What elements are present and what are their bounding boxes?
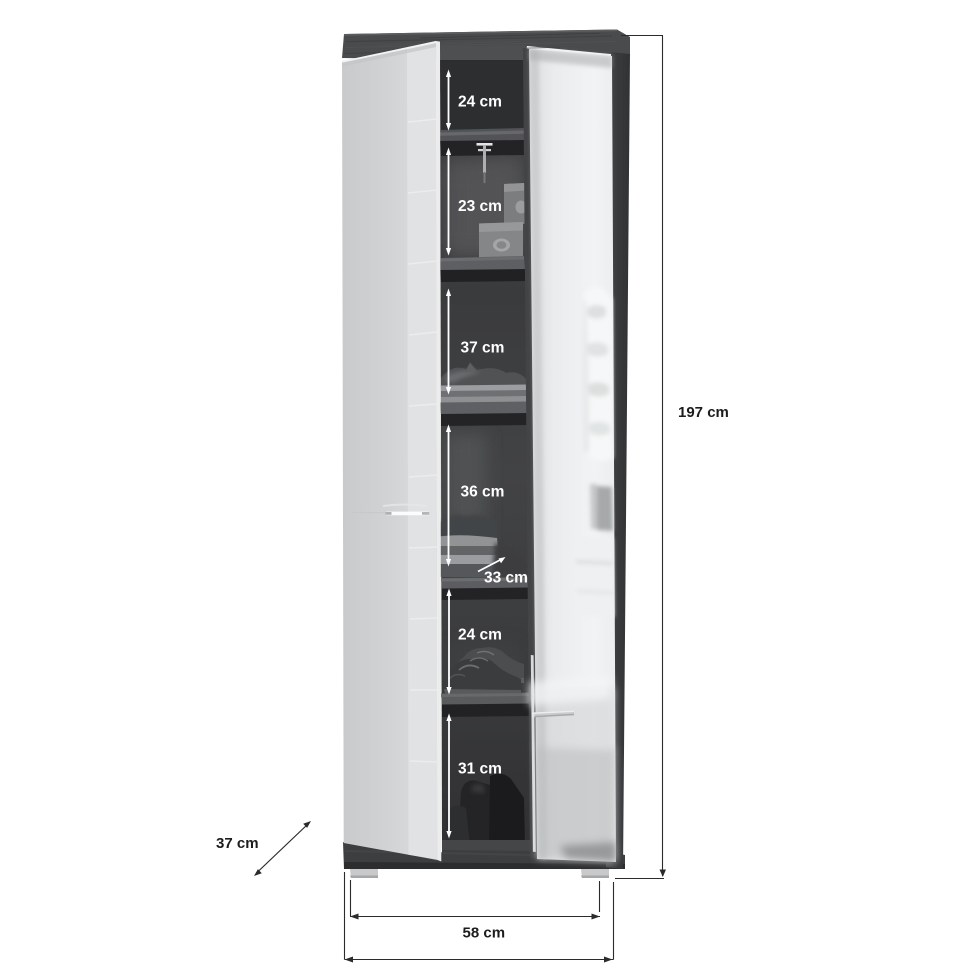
- svg-text:58 cm: 58 cm: [463, 925, 506, 942]
- svg-text:37 cm: 37 cm: [461, 340, 505, 357]
- svg-text:197 cm: 197 cm: [678, 404, 729, 421]
- svg-text:24 cm: 24 cm: [458, 627, 502, 644]
- svg-text:31 cm: 31 cm: [458, 761, 502, 778]
- svg-text:36 cm: 36 cm: [461, 484, 505, 501]
- svg-text:33 cm: 33 cm: [484, 570, 528, 587]
- svg-text:37 cm: 37 cm: [216, 835, 259, 852]
- svg-text:24 cm: 24 cm: [458, 94, 502, 111]
- svg-text:23 cm: 23 cm: [458, 198, 502, 215]
